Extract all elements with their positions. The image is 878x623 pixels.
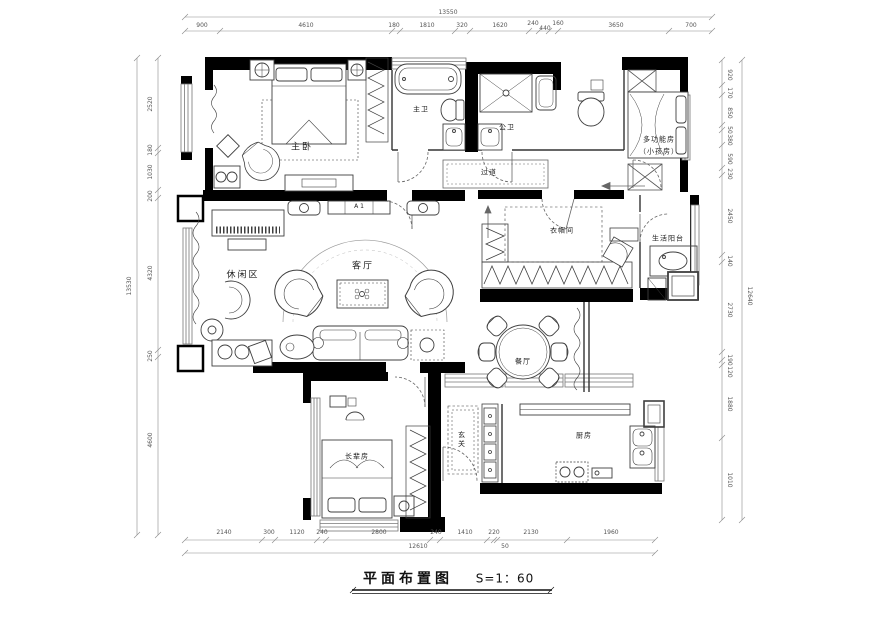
dim-top-8: 160 bbox=[552, 21, 563, 27]
dim-bottom-4: 2800 bbox=[371, 530, 386, 536]
public-bath-fixtures bbox=[478, 74, 604, 150]
dim-bottom-8: 50 bbox=[501, 544, 509, 550]
dim-left-5: 250 bbox=[148, 350, 154, 361]
label-leisure: 休闲区 bbox=[226, 272, 259, 281]
dim-top-4: 320 bbox=[456, 23, 467, 29]
dim-right-5: 590 bbox=[726, 153, 732, 164]
dim-bottom-1: 300 bbox=[263, 530, 274, 536]
dim-top-3: 1810 bbox=[419, 23, 434, 29]
label-public-bath: 公卫 bbox=[499, 125, 515, 132]
dim-right-11: 120 bbox=[726, 366, 732, 377]
master-bedroom-furniture bbox=[212, 58, 389, 191]
dim-right-0: 920 bbox=[726, 69, 732, 80]
drawing-scale: S=1：60 bbox=[476, 570, 535, 587]
dim-right-12: 1880 bbox=[726, 396, 732, 411]
dim-bottom-0: 2140 bbox=[216, 530, 231, 536]
dim-right-4: 380 bbox=[726, 134, 732, 145]
dim-right-7: 2450 bbox=[726, 208, 732, 223]
dim-left-6: 4600 bbox=[148, 432, 154, 447]
label-multi-room-sub: （小孩房） bbox=[639, 149, 679, 156]
dim-right-13: 1010 bbox=[726, 472, 732, 487]
dim-right-2: 850 bbox=[726, 107, 732, 118]
dim-top-total: 13550 bbox=[438, 10, 457, 16]
label-dining: 餐厅 bbox=[515, 359, 531, 366]
drawing-title: 平面布置图 bbox=[363, 568, 453, 588]
dim-bottom-2: 1120 bbox=[289, 530, 304, 536]
foyer-fixtures bbox=[448, 404, 498, 482]
dim-left-3: 200 bbox=[148, 190, 154, 201]
label-kitchen: 厨房 bbox=[576, 433, 592, 440]
dim-bottom-5: 240 bbox=[430, 530, 441, 536]
label-living: 客厅 bbox=[352, 263, 374, 272]
dim-right-total: 12640 bbox=[746, 286, 752, 305]
label-corridor: 过道 bbox=[481, 170, 497, 177]
dim-bottom-6: 1410 bbox=[457, 530, 472, 536]
label-foyer: 玄关 bbox=[458, 431, 465, 449]
label-master-bath: 主卫 bbox=[413, 107, 429, 114]
dim-right-6: 230 bbox=[726, 168, 732, 179]
dim-top-1: 4610 bbox=[298, 23, 313, 29]
dim-right-9: 2730 bbox=[726, 302, 732, 317]
elder-room-furniture bbox=[322, 396, 430, 518]
dim-top-10: 700 bbox=[685, 23, 696, 29]
dim-bottom-10: 1960 bbox=[603, 530, 618, 536]
dim-top-6: 240 bbox=[527, 21, 538, 27]
label-elder-room: 长辈房 bbox=[345, 454, 369, 461]
kitchen-fixtures bbox=[520, 401, 664, 482]
dim-left-1: 180 bbox=[148, 144, 154, 155]
label-tv-unit: A 1 bbox=[354, 204, 364, 210]
dim-right-1: 170 bbox=[726, 87, 732, 98]
cloakroom-furniture bbox=[482, 207, 638, 288]
label-cloakroom: 衣帽间 bbox=[550, 228, 574, 235]
label-balcony: 生活阳台 bbox=[652, 236, 684, 243]
dim-right-3: 50 bbox=[726, 126, 732, 134]
dim-bottom-9: 2130 bbox=[523, 530, 538, 536]
dim-bottom-total: 12610 bbox=[408, 544, 427, 550]
dim-top-2: 180 bbox=[388, 23, 399, 29]
dim-bottom-7: 220 bbox=[488, 530, 499, 536]
dim-left-total: 13530 bbox=[127, 276, 133, 295]
dim-top-0: 900 bbox=[196, 23, 207, 29]
dim-bottom-3: 240 bbox=[316, 530, 327, 536]
leisure-area-furniture bbox=[193, 210, 284, 366]
dim-right-8: 140 bbox=[726, 255, 732, 266]
dim-right-10: 190 bbox=[726, 354, 732, 365]
living-room-furniture bbox=[266, 201, 462, 360]
dim-top-5: 1620 bbox=[492, 23, 507, 29]
dim-left-0: 2520 bbox=[148, 96, 154, 111]
master-bath-fixtures bbox=[395, 64, 465, 150]
dim-left-4: 4320 bbox=[148, 265, 154, 280]
label-multi-room: 多功能房 bbox=[643, 137, 675, 144]
dim-top-7: 440 bbox=[539, 26, 550, 32]
dim-top-9: 3650 bbox=[608, 23, 623, 29]
floor-plan-canvas: 主卧 主卫 公卫 多功能房 （小孩房） 过道 休闲区 客厅 A 1 衣帽间 生活… bbox=[0, 0, 878, 623]
dim-left-2: 1030 bbox=[148, 164, 154, 179]
label-master-bedroom: 主卧 bbox=[291, 144, 313, 153]
